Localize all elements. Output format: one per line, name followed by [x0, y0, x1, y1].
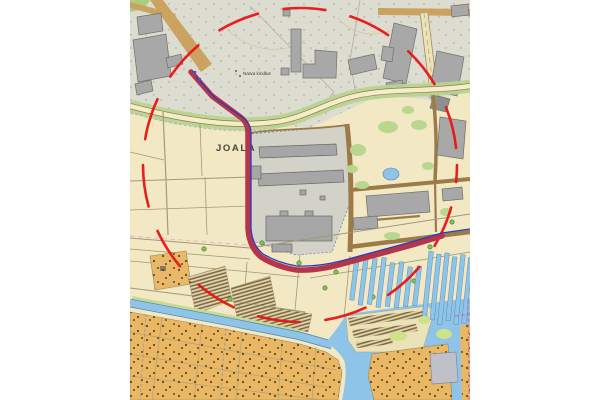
building: [272, 244, 292, 252]
building: [291, 29, 301, 72]
building: [137, 13, 163, 35]
poi-label: Narva kindlus: [243, 71, 272, 76]
route-start-marker: [198, 78, 201, 81]
tree-icon: [323, 286, 327, 290]
map-svg: Narva kindlus JOALA: [130, 0, 470, 400]
poi-marker: [239, 75, 241, 77]
map-viewport: Narva kindlus JOALA: [0, 0, 600, 400]
building: [133, 34, 171, 82]
poi-marker: [235, 70, 237, 72]
tree-icon: [428, 245, 432, 249]
green-patch: [389, 331, 407, 341]
building: [381, 46, 394, 62]
building: [366, 191, 430, 217]
building: [442, 187, 463, 201]
green-patch: [355, 181, 369, 189]
tree-icon: [334, 270, 338, 274]
building: [451, 4, 469, 17]
green-patch: [436, 329, 452, 339]
pond: [383, 168, 399, 180]
route-start-marker: [193, 71, 196, 74]
building: [320, 196, 325, 200]
green-patch: [378, 121, 398, 133]
tree-icon: [260, 241, 264, 245]
tree-icon: [228, 297, 232, 301]
tree-icon: [297, 261, 301, 265]
tree-icon: [450, 220, 454, 224]
road: [435, 180, 436, 232]
green-patch: [418, 316, 430, 324]
building: [281, 68, 289, 75]
green-patch: [384, 232, 400, 240]
map-canvas[interactable]: Narva kindlus JOALA: [130, 0, 470, 400]
green-patch: [402, 106, 414, 114]
green-patch: [346, 165, 358, 173]
green-patch: [411, 120, 427, 130]
green-patch: [350, 144, 366, 156]
tree-icon: [202, 247, 206, 251]
building: [430, 352, 458, 384]
building: [283, 10, 290, 16]
factory-complex: [247, 125, 352, 255]
building: [353, 216, 378, 230]
green-patch: [422, 162, 434, 170]
building: [300, 190, 306, 195]
